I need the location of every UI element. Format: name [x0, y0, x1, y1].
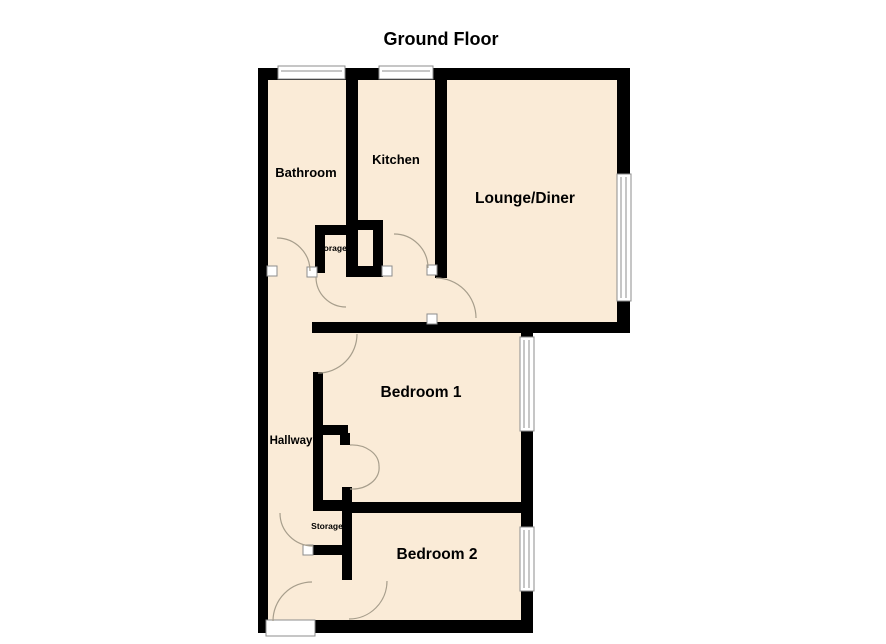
- room-label-storage-upper: Storage: [315, 243, 347, 253]
- wall-segment: [346, 80, 358, 277]
- floor-plan: Ground Floor Bathroom Kitchen Lounge/Din…: [0, 0, 886, 644]
- front-door-threshold: [266, 620, 315, 636]
- wall-segment: [352, 502, 533, 513]
- room-label-lounge: Lounge/Diner: [475, 190, 575, 207]
- lounge-window: [617, 174, 631, 301]
- room-label-hallway: Hallway: [270, 435, 313, 447]
- room-label-storage-lower: Storage: [311, 521, 343, 531]
- wall-segment: [435, 80, 447, 278]
- bathroom-window: [278, 66, 345, 79]
- door-jamb: [307, 267, 317, 277]
- room-label-kitchen: Kitchen: [372, 152, 420, 167]
- door-jamb: [427, 314, 437, 324]
- bedroom1-window: [520, 337, 534, 431]
- wall-segment: [346, 266, 383, 277]
- wall-segment: [340, 433, 350, 445]
- wall-segment: [313, 372, 323, 510]
- door-jamb: [267, 266, 277, 276]
- room-label-bedroom2: Bedroom 2: [397, 546, 478, 563]
- plan-title: Ground Floor: [384, 29, 499, 49]
- door-jamb: [382, 266, 392, 276]
- room-label-bathroom: Bathroom: [275, 165, 336, 180]
- kitchen-window: [379, 66, 433, 79]
- floor-bottom-section: [263, 328, 528, 625]
- room-label-bedroom1: Bedroom 1: [381, 384, 462, 401]
- wall-segment: [313, 545, 352, 555]
- wall-segment: [313, 500, 345, 511]
- floor-plan-page: Ground Floor Bathroom Kitchen Lounge/Din…: [0, 0, 886, 644]
- wall-segment: [312, 322, 630, 333]
- wall-segment: [258, 68, 268, 633]
- bedroom2-window: [520, 527, 534, 591]
